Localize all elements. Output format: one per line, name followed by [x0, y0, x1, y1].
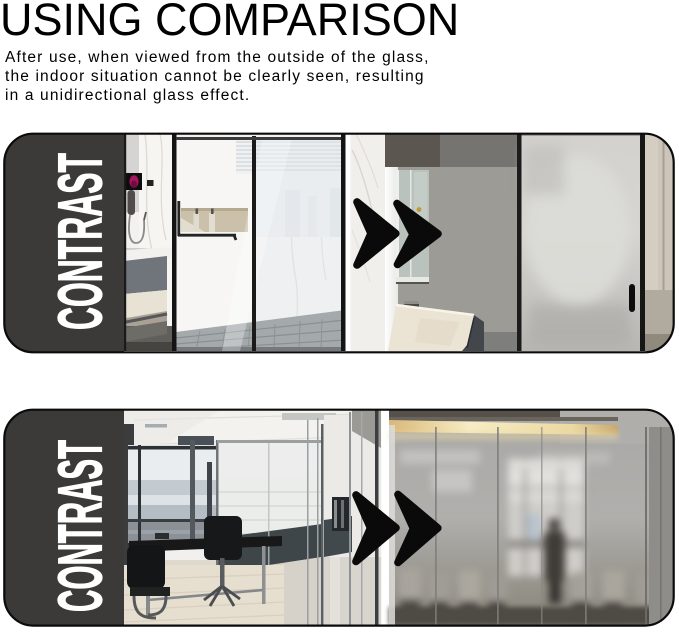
svg-text:CONTRAST: CONTRAST	[47, 153, 116, 330]
svg-text:CONTRAST: CONTRAST	[47, 440, 116, 612]
